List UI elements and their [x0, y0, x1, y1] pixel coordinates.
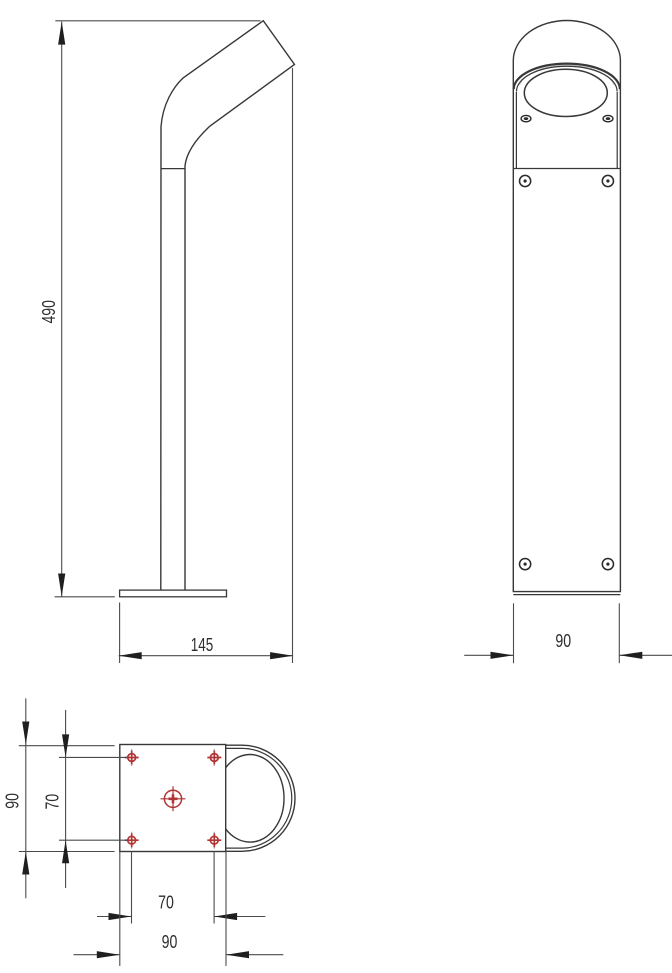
- svg-text:490: 490: [39, 300, 59, 324]
- svg-text:90: 90: [162, 932, 178, 952]
- svg-text:90: 90: [3, 793, 23, 809]
- svg-text:70: 70: [158, 893, 174, 913]
- svg-text:90: 90: [555, 631, 571, 651]
- svg-text:70: 70: [42, 794, 62, 810]
- svg-text:145: 145: [191, 635, 214, 655]
